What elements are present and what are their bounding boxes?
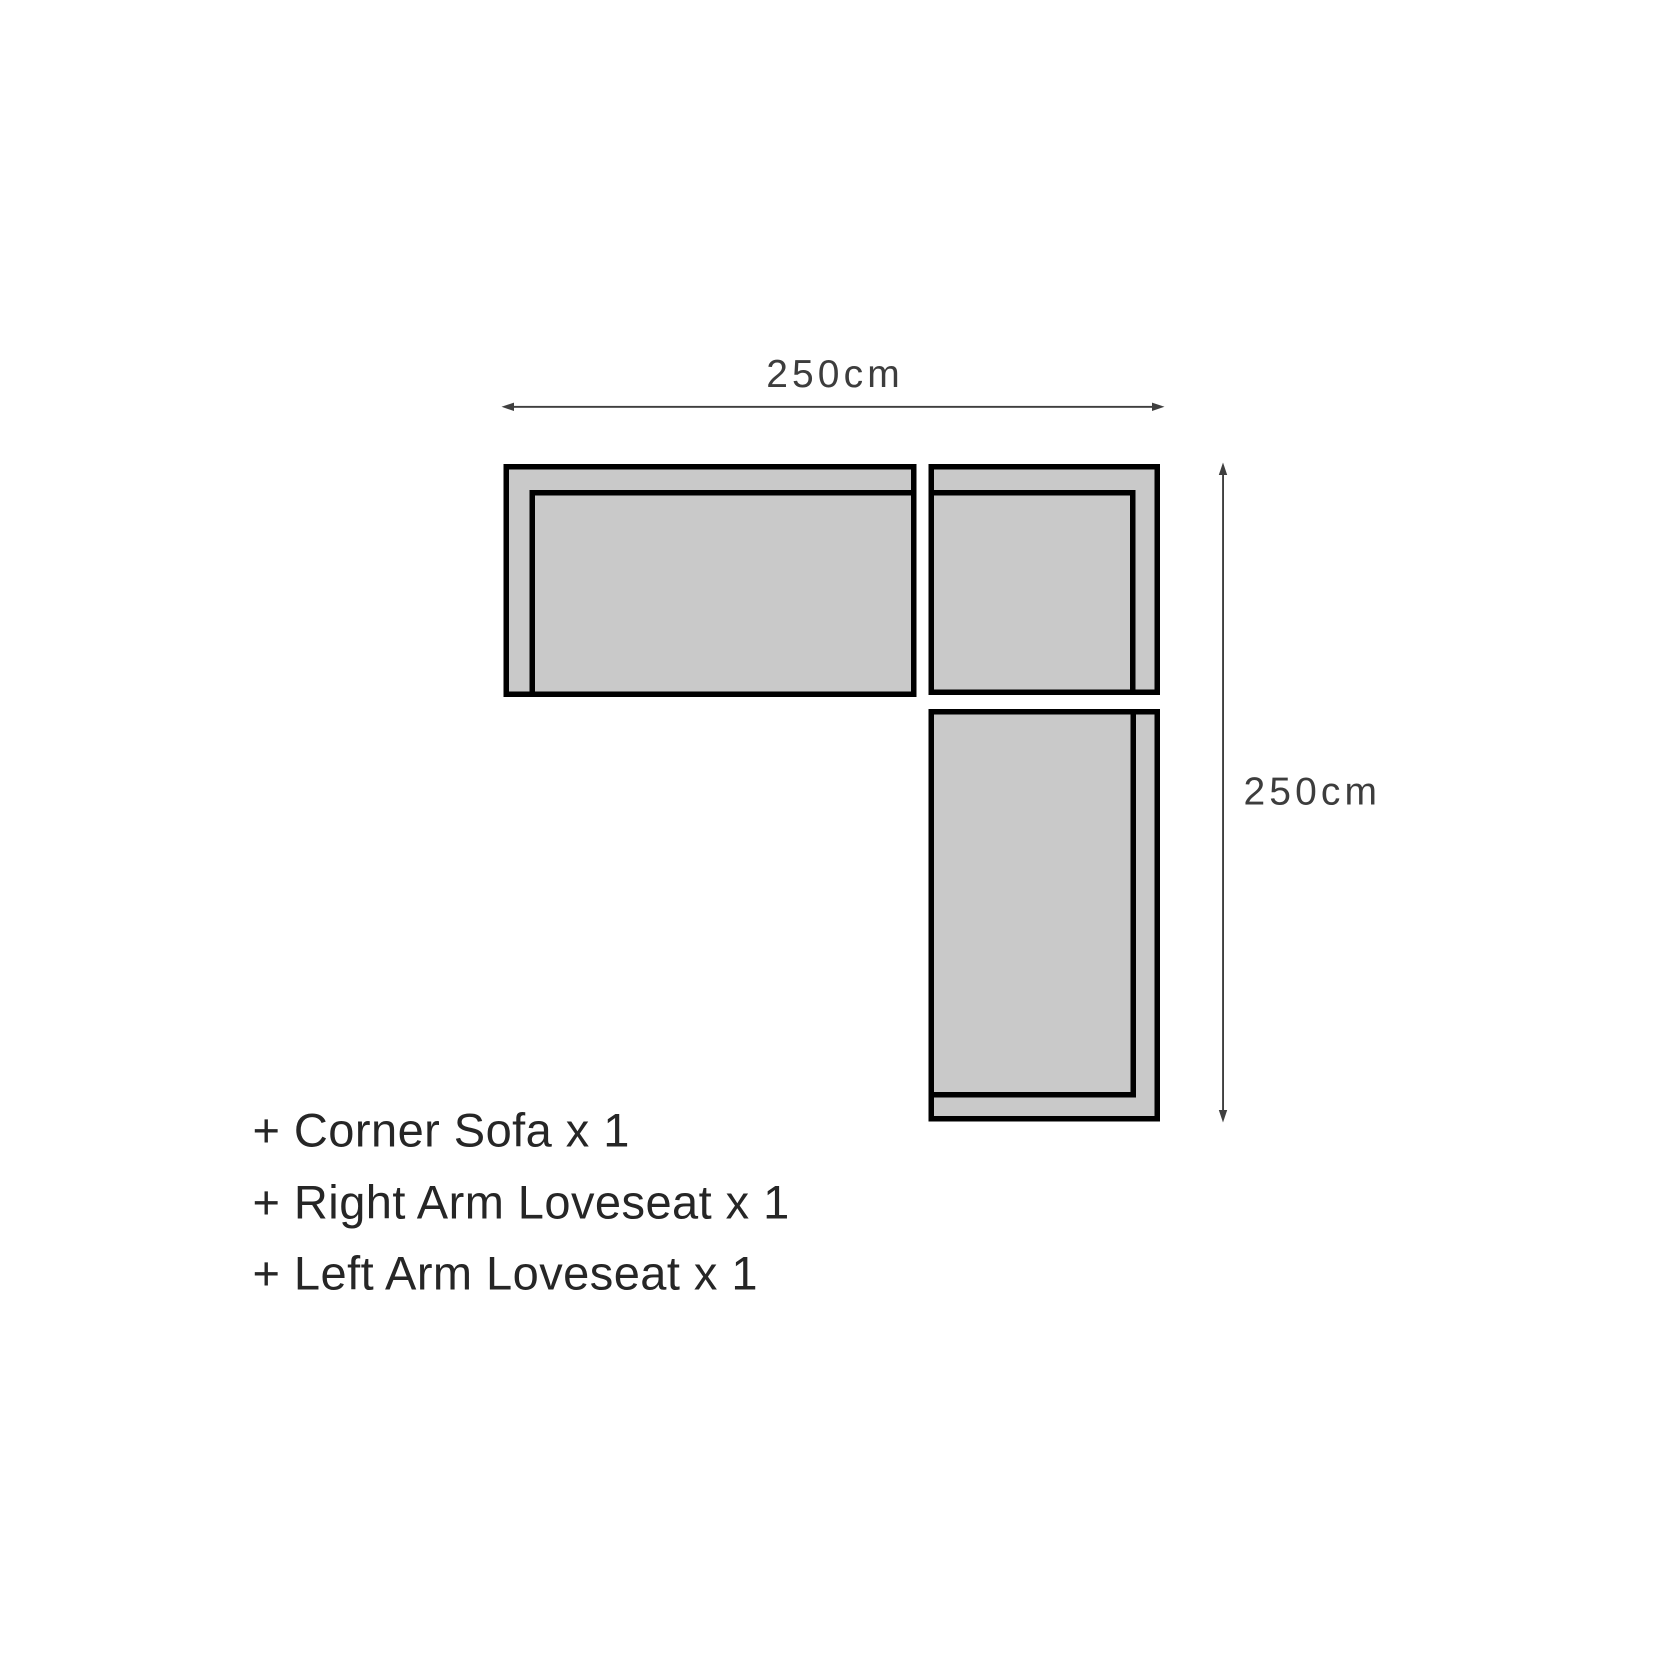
svg-text:+ Corner Sofa x 1: + Corner Sofa x 1 (253, 1104, 630, 1157)
svg-text:250cm: 250cm (1244, 771, 1382, 814)
svg-text:+ Right Arm Loveseat x 1: + Right Arm Loveseat x 1 (253, 1176, 790, 1229)
svg-text:250cm: 250cm (766, 353, 904, 396)
svg-text:+ Left Arm Loveseat x 1: + Left Arm Loveseat x 1 (253, 1247, 758, 1300)
